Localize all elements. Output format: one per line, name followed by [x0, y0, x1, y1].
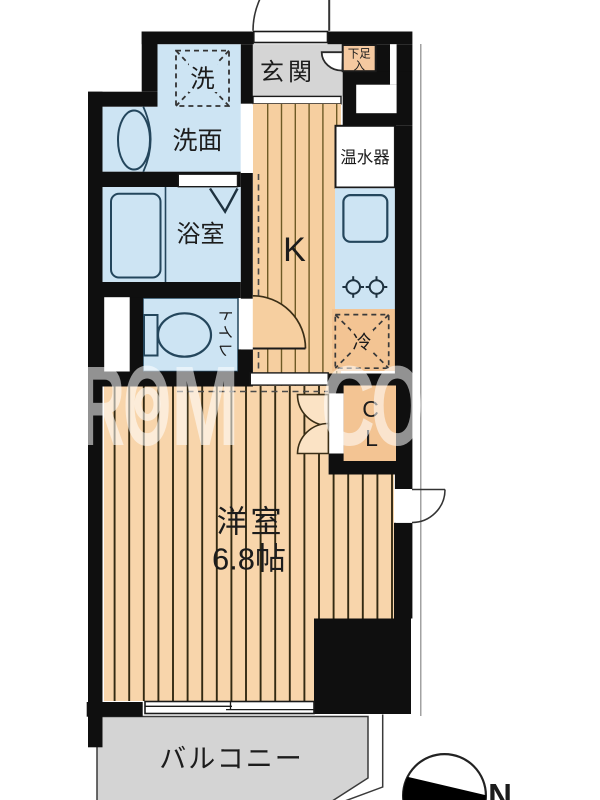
svg-text:洋室: 洋室 [217, 505, 285, 540]
svg-text:温水器: 温水器 [340, 148, 390, 167]
svg-text:洗: 洗 [190, 65, 215, 93]
svg-text:N: N [488, 777, 512, 800]
svg-text:下足: 下足 [348, 49, 371, 61]
svg-text:洗面: 洗面 [172, 127, 222, 155]
svg-text:入: 入 [354, 60, 366, 73]
svg-text:O: O [123, 343, 171, 469]
svg-text:O: O [371, 343, 424, 469]
svg-text:浴室: 浴室 [177, 221, 225, 248]
svg-text:K: K [283, 231, 306, 269]
svg-text:バルコニー: バルコニー [159, 744, 303, 774]
svg-text:M: M [171, 342, 240, 469]
svg-text:R: R [80, 343, 125, 469]
svg-text:玄関: 玄関 [260, 59, 316, 86]
svg-text:6.8帖: 6.8帖 [212, 542, 286, 577]
svg-text:C: C [321, 343, 375, 469]
